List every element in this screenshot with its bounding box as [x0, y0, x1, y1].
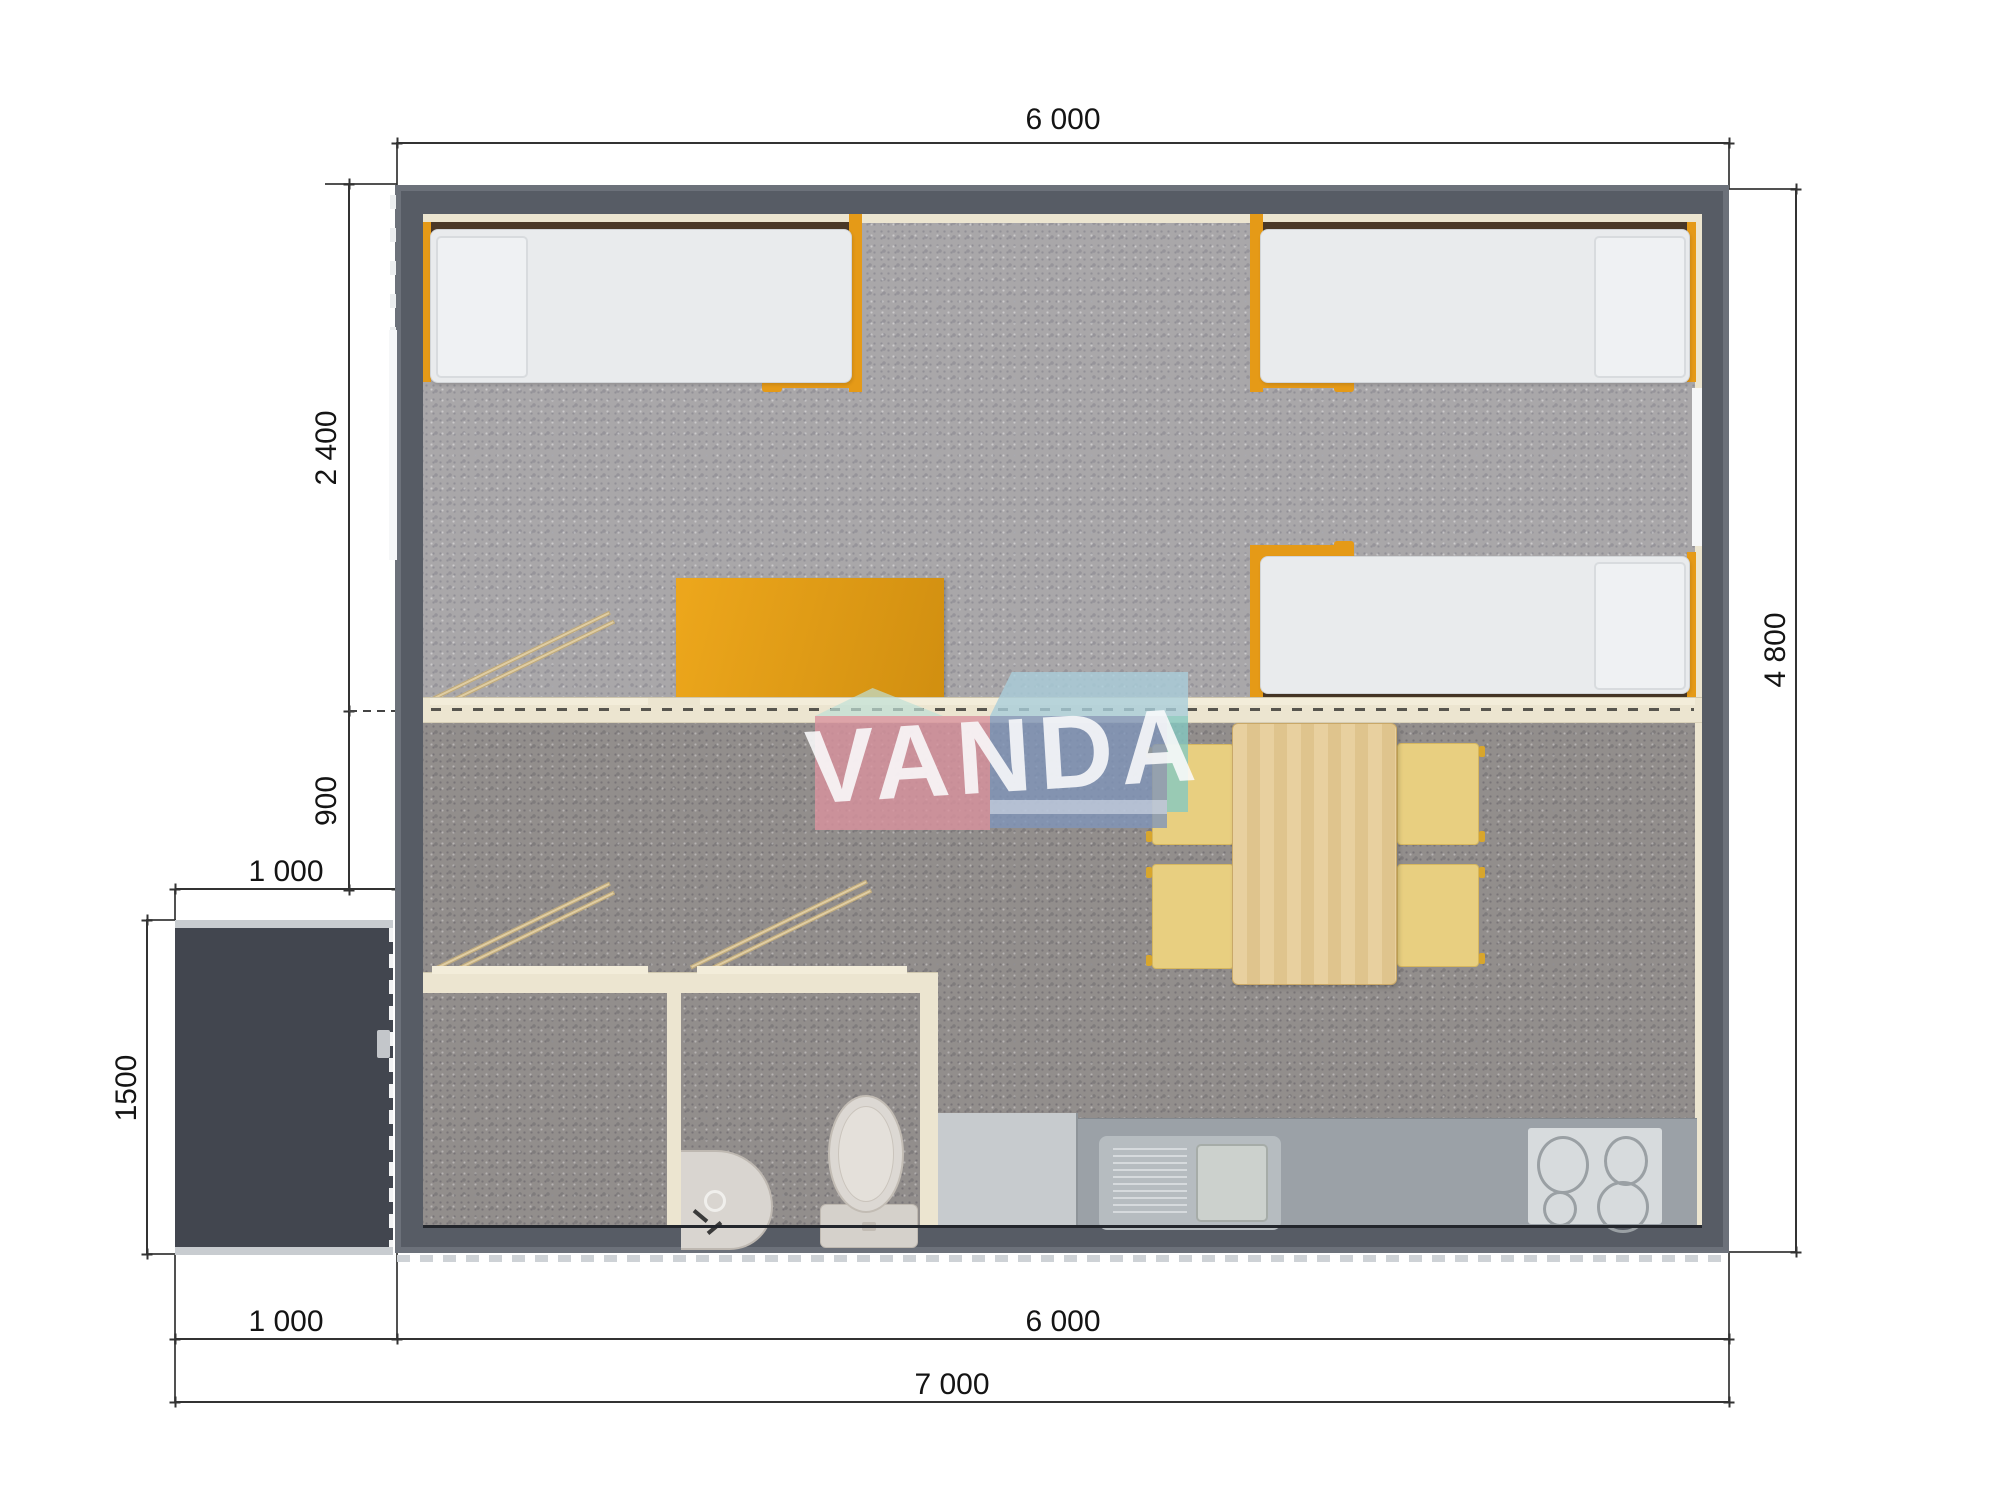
- entry-door-line: [389, 928, 393, 1247]
- dim-line-right: [1795, 188, 1797, 1253]
- dim-label-bottom-main: 6 000: [1025, 1305, 1100, 1339]
- dining-chair: [1397, 743, 1479, 845]
- window-left: [389, 330, 397, 560]
- window-right: [1692, 388, 1702, 546]
- bathroom-wall-plate: [432, 966, 648, 974]
- extension-line: [174, 889, 176, 920]
- extension-line: [396, 142, 398, 189]
- dining-chair: [1397, 864, 1479, 967]
- faucet-ring: [704, 1190, 726, 1212]
- burner: [1543, 1191, 1577, 1227]
- sink-basin: [1196, 1144, 1268, 1222]
- extension-line: [325, 183, 397, 185]
- divider-wall-plate: [430, 698, 648, 705]
- extension-line: [146, 1253, 176, 1255]
- burner: [1604, 1136, 1648, 1186]
- bathroom-wall-plate: [697, 966, 907, 974]
- bed-pillow: [1594, 562, 1686, 690]
- kitchen-cabinet: [938, 1113, 1078, 1225]
- door-handle: [377, 1030, 390, 1058]
- drainboard: [1113, 1148, 1187, 1218]
- extension-line: [174, 1255, 176, 1403]
- dim-label-porch-width: 1 000: [248, 855, 323, 889]
- dining-table: [1232, 723, 1397, 985]
- dim-label-bottom-total: 7 000: [914, 1368, 989, 1402]
- extension-line: [1729, 1251, 1796, 1253]
- extension-line: [1729, 188, 1796, 190]
- bottom-wall-edge: [423, 1225, 1702, 1228]
- watermark-text: VANDA: [802, 685, 1206, 828]
- dim-label-right-height: 4 800: [1759, 612, 1793, 687]
- dim-line-porch-depth: [146, 920, 148, 1255]
- extension-line: [396, 1253, 398, 1340]
- extension-line: [1728, 142, 1730, 189]
- dim-label-bottom-porch: 1 000: [248, 1305, 323, 1339]
- dim-line-bottom-1: [175, 1338, 1729, 1340]
- wardrobe: [676, 578, 944, 698]
- bed-pillow: [1594, 236, 1686, 378]
- toilet-seat: [838, 1106, 894, 1202]
- extension-line: [146, 919, 176, 921]
- sink-unit: [1099, 1136, 1281, 1230]
- extension-line: [1728, 1253, 1730, 1403]
- dim-label-porch-depth: 1500: [110, 1055, 144, 1122]
- bathroom-wall-partition: [667, 993, 681, 1225]
- porch-step: [175, 1247, 393, 1255]
- dim-label-top-width: 6 000: [1025, 103, 1100, 137]
- window-marks-left: [390, 195, 396, 330]
- porch: [175, 920, 393, 1255]
- stove: [1528, 1128, 1662, 1224]
- dining-chair: [1152, 864, 1234, 969]
- dim-line-top: [397, 142, 1729, 144]
- bathroom-wall-right: [920, 993, 938, 1225]
- dim-label-hall-depth: 900: [310, 776, 344, 826]
- dim-line-left: [348, 184, 350, 890]
- porch-step: [175, 920, 393, 928]
- bed-pillow: [436, 236, 528, 378]
- bathroom-wall-front: [423, 972, 938, 993]
- threshold-dashes: [397, 1255, 1729, 1262]
- burner: [1537, 1136, 1589, 1194]
- floor-plan: 6 000 2 400 900 1 000 1500 4 800 1 000 6…: [0, 0, 2000, 1502]
- dim-label-bedroom-depth: 2 400: [310, 410, 344, 485]
